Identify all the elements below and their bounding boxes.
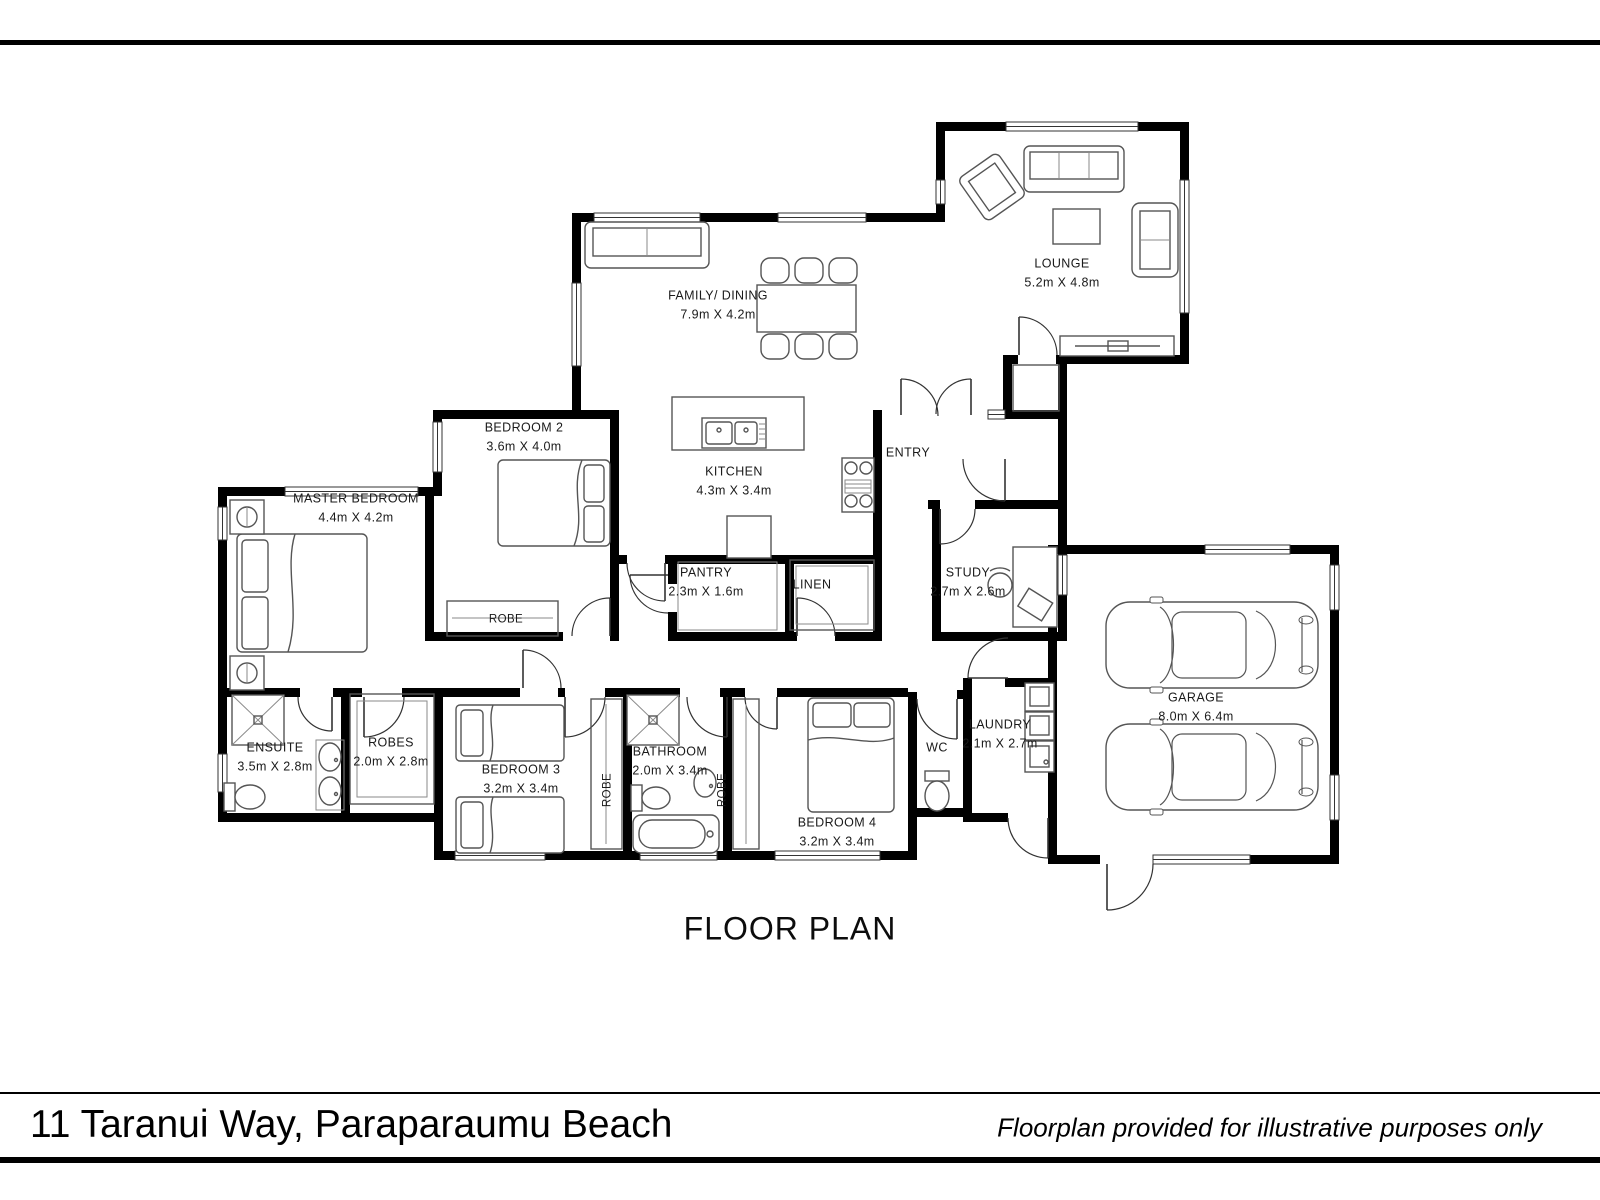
cooktop-icon: [842, 458, 874, 512]
room-name: ROBE: [599, 773, 616, 807]
room-label-pantry: PANTRY 2.3m X 1.6m: [668, 563, 743, 601]
room-dims: 3.6m X 4.0m: [485, 437, 564, 456]
room-label-linen: LINEN: [793, 576, 832, 595]
room-name: MASTER BEDROOM: [293, 489, 419, 508]
family-loveseat-icon: [585, 222, 709, 268]
room-dims: 2.3m X 1.6m: [668, 582, 743, 601]
room-dims: 3.5m X 2.8m: [237, 757, 312, 776]
room-name: GARAGE: [1158, 688, 1233, 707]
room-label-master-bedroom: MASTER BEDROOM 4.4m X 4.2m: [293, 489, 419, 527]
bathtub-icon: [633, 815, 719, 853]
room-name: WC: [926, 739, 948, 758]
room-name: ENSUITE: [237, 738, 312, 757]
garage-car1-icon: [1106, 597, 1318, 693]
bathroom-shower-icon: [627, 695, 679, 745]
room-dims: 3.2m X 3.4m: [798, 832, 877, 851]
footer-divider-thin: [0, 1092, 1600, 1094]
room-name: LINEN: [793, 576, 832, 595]
room-label-ensuite: ENSUITE 3.5m X 2.8m: [237, 738, 312, 776]
room-name: ROBE: [489, 611, 523, 628]
room-name: ENTRY: [886, 444, 930, 463]
room-label-kitchen: KITCHEN 4.3m X 3.4m: [696, 462, 771, 500]
master-bed-icon: [237, 534, 367, 652]
kitchen-island-icon: [672, 397, 804, 450]
entry-closet-icon: [1013, 365, 1059, 411]
room-label-robe-bedroom2: ROBE: [489, 611, 523, 628]
room-dims: 3.2m X 3.4m: [482, 779, 561, 798]
floorplan-page: LOUNGE 5.2m X 4.8m FAMILY/ DINING 7.9m X…: [0, 0, 1600, 1200]
room-name: LOUNGE: [1024, 254, 1099, 273]
lounge-armchair2-icon: [1132, 203, 1178, 277]
plan-title: FLOOR PLAN: [684, 911, 897, 948]
room-label-study: STUDY 2.7m X 2.6m: [930, 563, 1005, 601]
room-name: PANTRY: [668, 563, 743, 582]
room-name: FAMILY/ DINING: [668, 286, 768, 305]
room-label-wc: WC: [926, 739, 948, 758]
room-dims: 7.9m X 4.2m: [668, 305, 768, 324]
ensuite-toilet-icon: [224, 783, 265, 811]
robe-strip-right-icon: [733, 699, 759, 849]
room-label-entry: ENTRY: [886, 444, 930, 463]
room-label-bedroom2: BEDROOM 2 3.6m X 4.0m: [485, 418, 564, 456]
coffee-table-icon: [1053, 209, 1100, 244]
room-label-robe-left: ROBE: [599, 773, 616, 807]
master-nightstand-icon: [230, 500, 264, 534]
dining-table-icon: [757, 285, 856, 332]
room-dims: 2.7m X 2.6m: [930, 582, 1005, 601]
room-label-robes: ROBES 2.0m X 2.8m: [353, 733, 428, 771]
room-name: BEDROOM 4: [798, 813, 877, 832]
room-label-family-dining: FAMILY/ DINING 7.9m X 4.2m: [668, 286, 768, 324]
disclaimer-text: Floorplan provided for illustrative purp…: [997, 1113, 1542, 1144]
room-dims: 5.2m X 4.8m: [1024, 273, 1099, 292]
bedroom3-bed1-icon: [456, 705, 564, 761]
lounge-armchair-icon: [957, 152, 1026, 222]
room-label-robe-right: ROBE: [714, 773, 731, 807]
room-dims: 2.0m X 3.4m: [632, 761, 707, 780]
room-label-lounge: LOUNGE 5.2m X 4.8m: [1024, 254, 1099, 292]
room-name: BATHROOM: [632, 742, 707, 761]
lounge-sofa-icon: [1024, 146, 1124, 192]
footer-divider-thick: [0, 1157, 1600, 1163]
bedroom4-bed-icon: [808, 698, 894, 812]
room-label-garage: GARAGE 8.0m X 6.4m: [1158, 688, 1233, 726]
wc-toilet-icon: [925, 771, 949, 811]
room-name: BEDROOM 2: [485, 418, 564, 437]
room-dims: 4.4m X 4.2m: [293, 508, 419, 527]
room-label-laundry: LAUNDRY 2.1m X 2.7m: [962, 715, 1037, 753]
floor-plan-drawing: [0, 0, 1600, 1200]
tv-unit-icon: [1060, 336, 1174, 356]
room-name: LAUNDRY: [962, 715, 1037, 734]
master-nightstand2-icon: [230, 656, 264, 690]
room-label-bathroom: BATHROOM 2.0m X 3.4m: [632, 742, 707, 780]
bedroom2-bed-icon: [498, 460, 610, 546]
room-name: ROBE: [714, 773, 731, 807]
room-label-bedroom4: BEDROOM 4 3.2m X 3.4m: [798, 813, 877, 851]
room-name: ROBES: [353, 733, 428, 752]
bedroom3-bed2-icon: [456, 797, 564, 853]
garage-car2-icon: [1106, 719, 1318, 815]
room-dims: 8.0m X 6.4m: [1158, 707, 1233, 726]
room-label-bedroom3: BEDROOM 3 3.2m X 3.4m: [482, 760, 561, 798]
room-name: BEDROOM 3: [482, 760, 561, 779]
bathroom-toilet-icon: [631, 785, 670, 811]
room-name: STUDY: [930, 563, 1005, 582]
ensuite-vanity-icon: [316, 740, 344, 810]
room-name: KITCHEN: [696, 462, 771, 481]
kitchen-bench-icon: [727, 516, 771, 558]
room-dims: 4.3m X 3.4m: [696, 481, 771, 500]
room-dims: 2.0m X 2.8m: [353, 752, 428, 771]
room-dims: 2.1m X 2.7m: [962, 734, 1037, 753]
property-address: 11 Taranui Way, Paraparaumu Beach: [30, 1103, 672, 1147]
